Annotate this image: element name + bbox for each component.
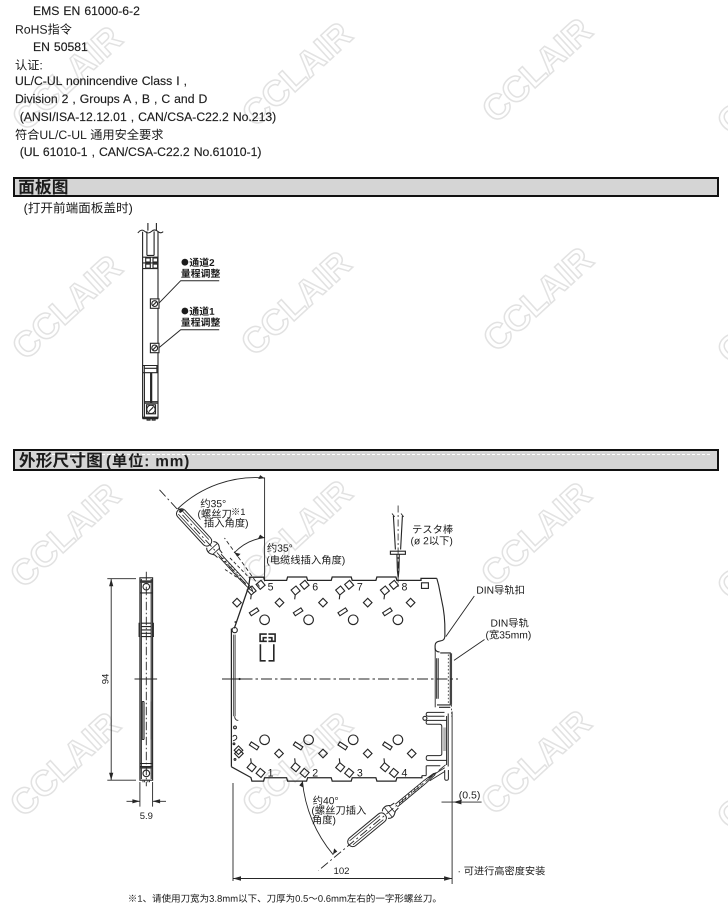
svg-text:8: 8 <box>402 582 408 594</box>
svg-text:102: 102 <box>333 866 349 877</box>
svg-text:(0.5): (0.5) <box>459 789 481 801</box>
svg-text:7: 7 <box>357 582 363 594</box>
svg-text:5.9: 5.9 <box>140 811 153 822</box>
svg-text:2: 2 <box>312 768 318 780</box>
svg-text:3: 3 <box>357 768 363 780</box>
svg-text:94: 94 <box>101 674 112 685</box>
svg-text:4: 4 <box>402 768 408 780</box>
svg-text:5: 5 <box>268 582 274 594</box>
svg-text:1: 1 <box>268 768 274 780</box>
svg-text:6: 6 <box>312 582 318 594</box>
